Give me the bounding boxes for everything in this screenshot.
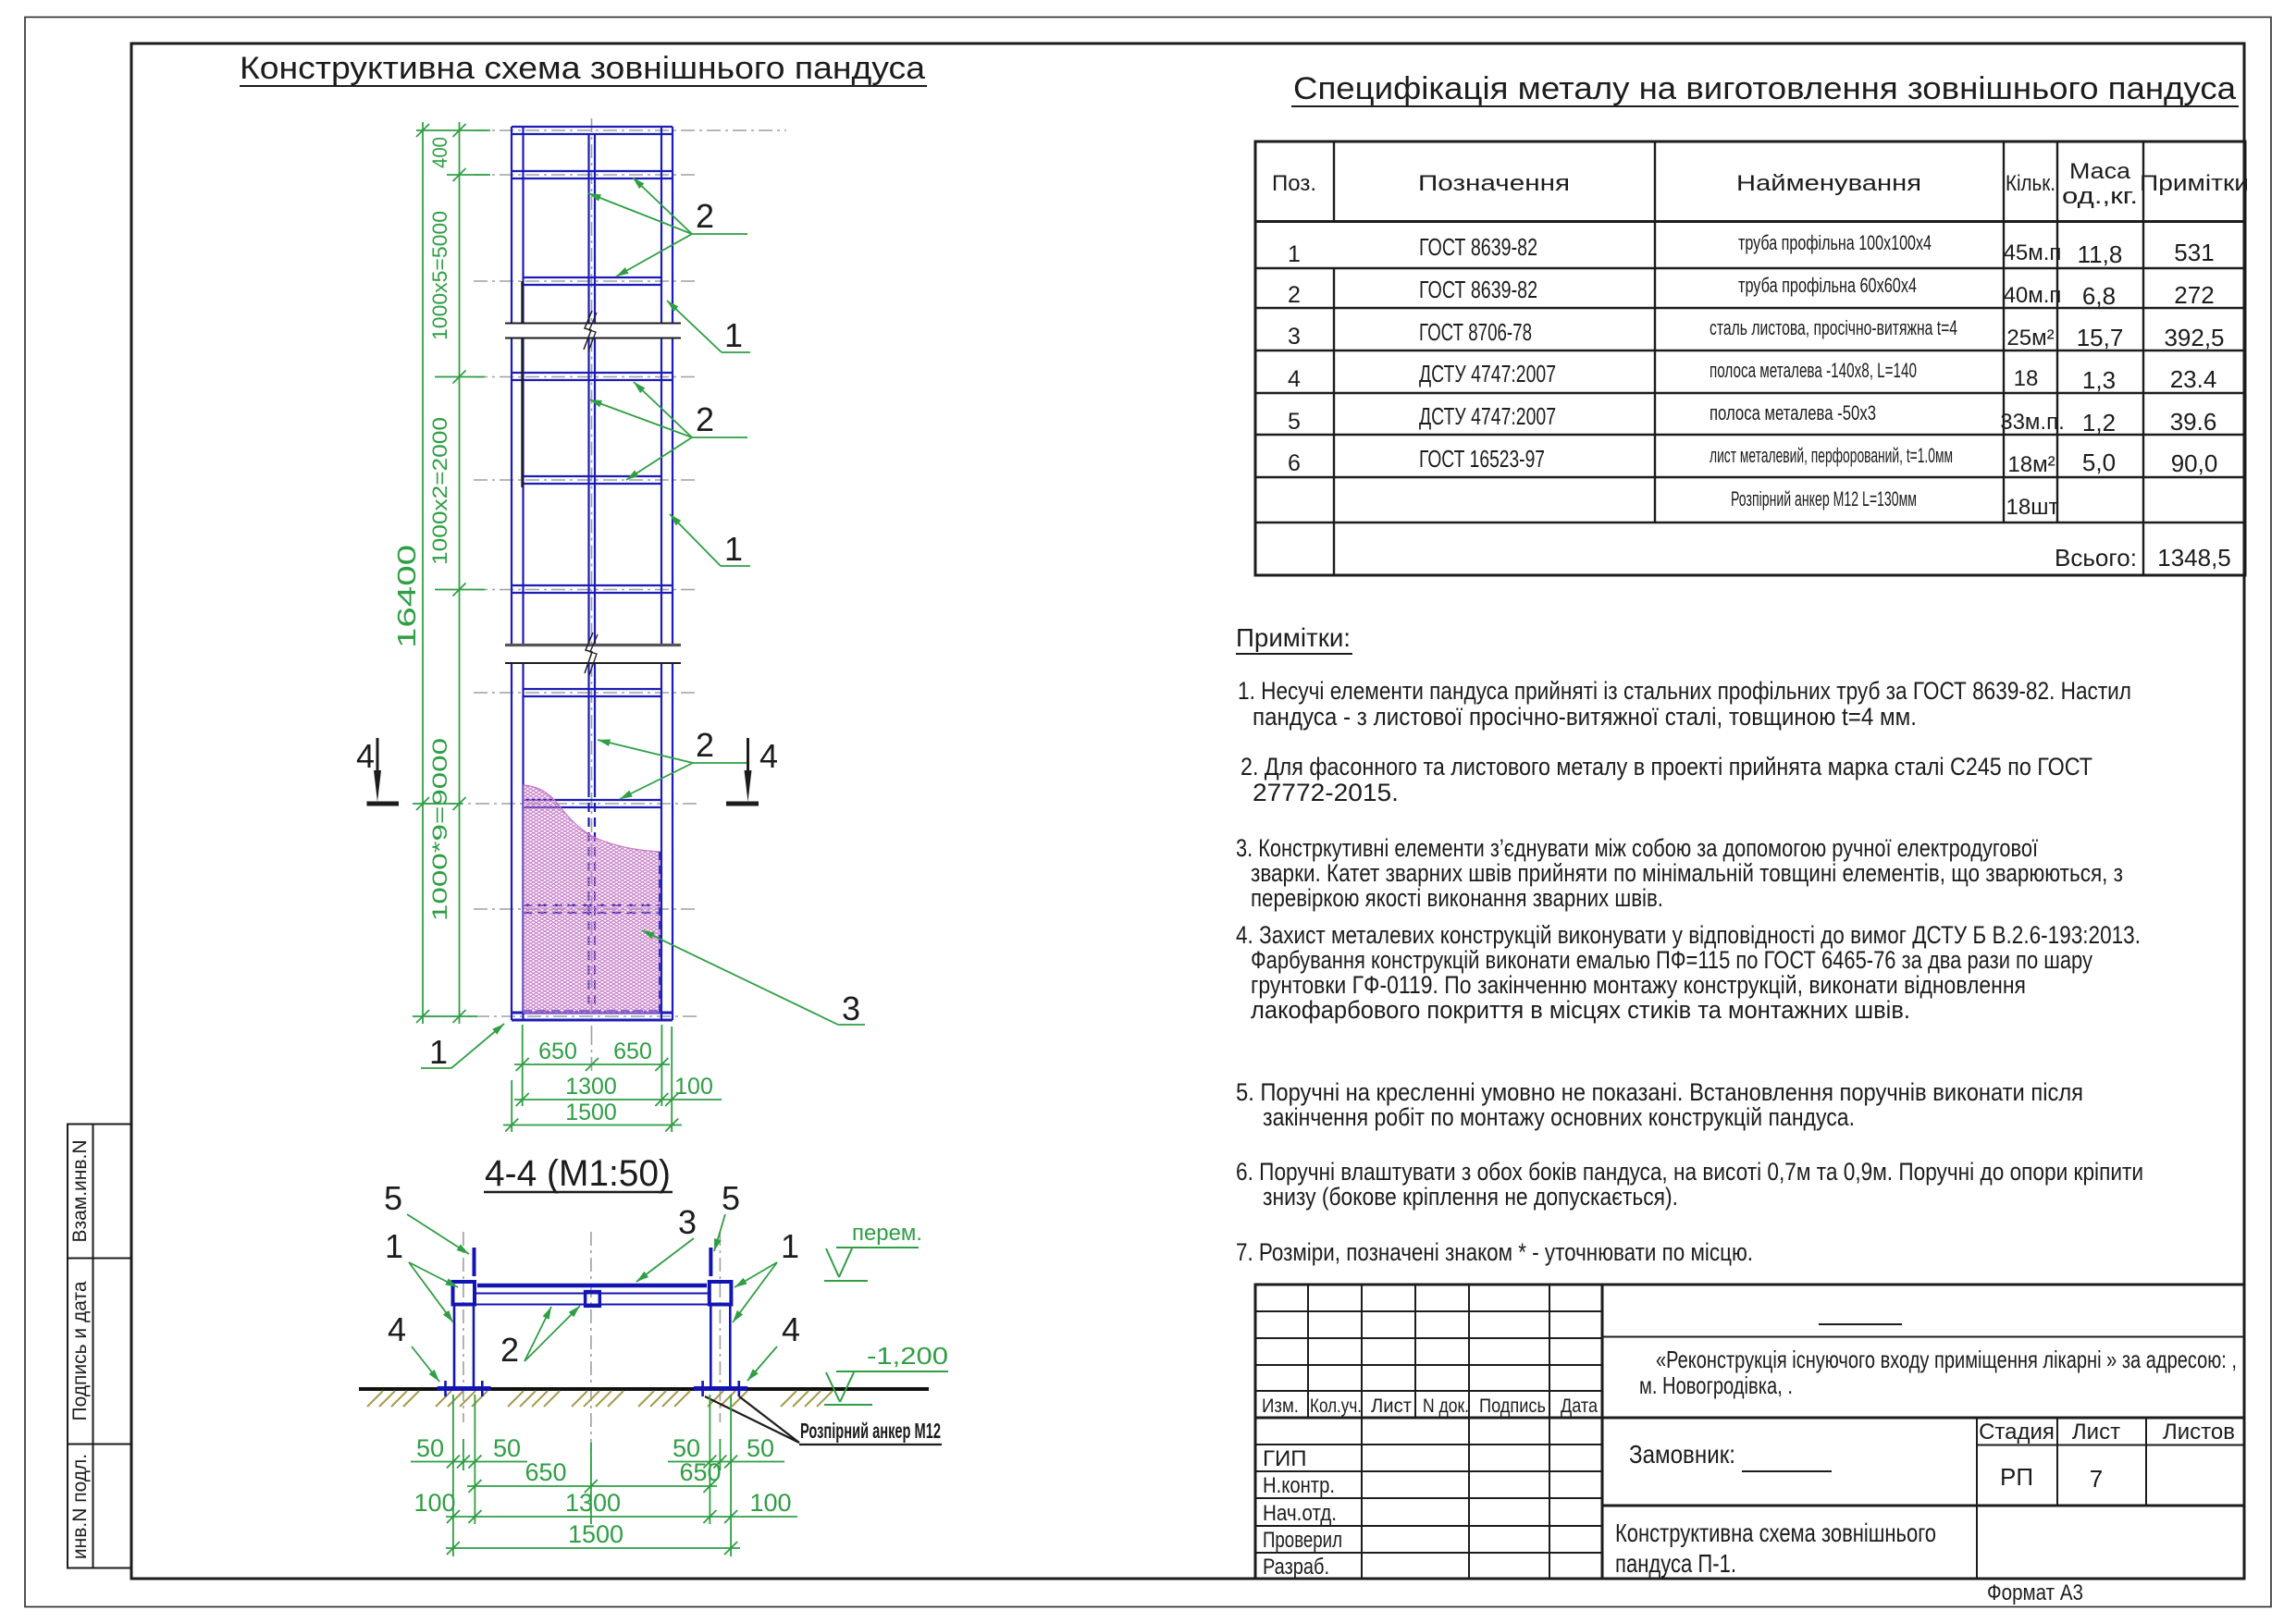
svg-text:4-4 (М1:50): 4-4 (М1:50): [485, 1153, 671, 1194]
svg-text:27772-2015.: 27772-2015.: [1253, 779, 1399, 806]
svg-text:650: 650: [538, 1039, 577, 1064]
svg-text:Найменування: Найменування: [1736, 171, 1921, 196]
svg-text:1: 1: [724, 316, 743, 354]
svg-text:Специфікація металу на виготов: Специфікація металу на виготовлення зовн…: [1293, 71, 2236, 106]
svg-text:11,8: 11,8: [2078, 240, 2123, 268]
svg-text:1. Несучі елементи пандуса при: 1. Несучі елементи пандуса прийняті із с…: [1238, 677, 2131, 705]
svg-text:РП: РП: [2000, 1463, 2033, 1491]
svg-text:23.4: 23.4: [2170, 365, 2217, 393]
svg-text:50: 50: [747, 1434, 774, 1462]
svg-text:Конструктивна схема зовнішньог: Конструктивна схема зовнішнього: [1615, 1518, 1936, 1547]
svg-text:Лист: Лист: [2072, 1420, 2120, 1445]
svg-text:6: 6: [1288, 450, 1301, 476]
svg-text:Фарбування конструкцій виконат: Фарбування конструкцій виконати емалью П…: [1251, 946, 2092, 974]
svg-text:90,0: 90,0: [2171, 449, 2218, 477]
svg-text:Примітки:: Примітки:: [1236, 623, 1351, 652]
svg-text:N док.: N док.: [1423, 1396, 1469, 1417]
svg-text:ГОСТ 8639-82: ГОСТ 8639-82: [1419, 276, 1537, 303]
svg-text:полоса металева -140х8, L=140: полоса металева -140х8, L=140: [1710, 359, 1917, 382]
svg-text:Замовник:: Замовник:: [1629, 1440, 1735, 1469]
svg-text:Изм.: Изм.: [1262, 1396, 1299, 1417]
svg-text:грунтовки ГФ-0119. По закінчен: грунтовки ГФ-0119. По закінченню монтажу…: [1251, 971, 2026, 999]
svg-text:18м²: 18м²: [2007, 452, 2055, 477]
svg-text:100: 100: [674, 1074, 713, 1100]
svg-text:25м²: 25м²: [2006, 326, 2054, 350]
svg-text:1: 1: [429, 1033, 448, 1071]
svg-text:33м.п.: 33м.п.: [2000, 410, 2065, 435]
svg-text:перем.: перем.: [852, 1221, 922, 1246]
svg-text:«Реконструкція існуючого входу: «Реконструкція існуючого входу приміщенн…: [1656, 1346, 2237, 1373]
svg-text:Проверил: Проверил: [1263, 1528, 1342, 1553]
svg-text:50: 50: [493, 1434, 521, 1462]
svg-text:16400: 16400: [392, 545, 421, 648]
svg-text:272: 272: [2174, 281, 2214, 309]
svg-text:ДСТУ 4747:2007: ДСТУ 4747:2007: [1419, 402, 1556, 430]
svg-text:Стадия: Стадия: [1979, 1420, 2055, 1445]
svg-text:392,5: 392,5: [2164, 324, 2224, 351]
svg-text:1000x5=5000: 1000x5=5000: [428, 211, 451, 340]
svg-text:Маса: Маса: [2069, 159, 2131, 184]
svg-text:650: 650: [613, 1039, 652, 1064]
svg-text:2: 2: [1288, 282, 1301, 308]
svg-text:5: 5: [722, 1179, 740, 1217]
svg-text:Поз.: Поз.: [1272, 171, 1316, 196]
svg-text:труба профільна 100х100х4: труба профільна 100х100х4: [1738, 231, 1932, 254]
svg-text:5: 5: [384, 1179, 402, 1217]
svg-text:5: 5: [1288, 409, 1301, 435]
svg-text:пандуса П-1.: пандуса П-1.: [1615, 1549, 1736, 1578]
svg-text:2. Для фасонного та листового: 2. Для фасонного та листового металу в п…: [1241, 753, 2092, 781]
svg-text:1348,5: 1348,5: [2157, 544, 2231, 572]
svg-text:Подпись и дата: Подпись и дата: [69, 1281, 91, 1420]
svg-text:2: 2: [696, 726, 714, 764]
svg-text:1: 1: [724, 530, 743, 568]
svg-text:4. Захист металевих конструкці: 4. Захист металевих конструкцій виконува…: [1236, 921, 2141, 949]
svg-text:6. Поручні влаштувати з обох б: 6. Поручні влаштувати з обох боків панду…: [1236, 1158, 2143, 1186]
svg-text:2: 2: [500, 1331, 519, 1369]
svg-text:полоса металева -50х3: полоса металева -50х3: [1710, 401, 1876, 424]
svg-text:ГИП: ГИП: [1263, 1446, 1307, 1471]
svg-text:Примітки: Примітки: [2140, 171, 2249, 196]
svg-text:закінчення робіт по монтажу ос: закінчення робіт по монтажу основних кон…: [1263, 1103, 1855, 1131]
svg-text:2: 2: [696, 197, 714, 235]
svg-text:3. Констркутивні елементи з’єд: 3. Констркутивні елементи з’єднувати між…: [1236, 834, 2038, 862]
svg-text:2: 2: [696, 400, 714, 438]
svg-text:400: 400: [428, 137, 451, 168]
svg-text:инв.N подл.: инв.N подл.: [69, 1454, 91, 1559]
svg-text:5. Поручні на кресленні умовн: 5. Поручні на кресленні умовно не показа…: [1236, 1078, 2083, 1106]
svg-text:650: 650: [525, 1458, 566, 1486]
svg-text:ДСТУ 4747:2007: ДСТУ 4747:2007: [1419, 360, 1556, 387]
svg-text:м. Новогродівка, .: м. Новогродівка, .: [1639, 1371, 1793, 1399]
svg-text:50: 50: [416, 1434, 444, 1462]
svg-text:Формат А3: Формат А3: [1987, 1580, 2083, 1605]
svg-text:Нач.отд.: Нач.отд.: [1263, 1501, 1337, 1526]
svg-text:ГОСТ 8639-82: ГОСТ 8639-82: [1419, 233, 1537, 261]
svg-text:лакофарбового покриття в місця: лакофарбового покриття в місцях стиків т…: [1251, 996, 1910, 1024]
svg-text:Кол.уч.: Кол.уч.: [1310, 1396, 1362, 1417]
svg-text:1: 1: [781, 1227, 799, 1265]
svg-text:4: 4: [782, 1310, 800, 1348]
svg-text:Разраб.: Разраб.: [1263, 1555, 1329, 1580]
svg-text:1500: 1500: [568, 1520, 623, 1548]
svg-text:40м.п: 40м.п: [2004, 283, 2062, 308]
svg-text:Кільк.: Кільк.: [2006, 171, 2055, 196]
svg-text:4: 4: [388, 1310, 406, 1348]
svg-text:зварки. Катет зварних швів при: зварки. Катет зварних швів прийняти по м…: [1251, 859, 2123, 887]
svg-text:3: 3: [842, 990, 860, 1027]
svg-text:3: 3: [1288, 324, 1301, 350]
svg-text:650: 650: [679, 1458, 721, 1486]
svg-text:1300: 1300: [565, 1489, 621, 1517]
svg-text:7: 7: [2090, 1465, 2103, 1493]
svg-text:531: 531: [2174, 239, 2214, 266]
svg-text:100: 100: [414, 1489, 455, 1517]
svg-text:18: 18: [2014, 366, 2039, 391]
svg-text:перевіркою якості виконання зв: перевіркою якості виконання зварних швів…: [1251, 884, 1663, 912]
svg-text:1300: 1300: [565, 1074, 617, 1100]
svg-text:од.,кг.: од.,кг.: [2062, 184, 2138, 209]
svg-text:15,7: 15,7: [2077, 324, 2124, 351]
svg-text:39.6: 39.6: [2170, 408, 2217, 436]
svg-text:45м.п: 45м.п: [2004, 240, 2062, 265]
svg-text:ГОСТ 16523-97: ГОСТ 16523-97: [1419, 445, 1545, 473]
svg-text:Листов: Листов: [2163, 1420, 2235, 1445]
svg-text:1000x2=2000: 1000x2=2000: [428, 417, 451, 565]
svg-text:ГОСТ 8706-78: ГОСТ 8706-78: [1419, 318, 1532, 346]
svg-text:1500: 1500: [565, 1100, 617, 1125]
svg-text:1,2: 1,2: [2082, 409, 2116, 436]
svg-text:1: 1: [1288, 241, 1301, 267]
svg-text:4: 4: [1288, 366, 1301, 392]
svg-text:1,3: 1,3: [2082, 366, 2116, 394]
svg-text:1000*9=9000: 1000*9=9000: [428, 738, 451, 921]
svg-text:18шт: 18шт: [2006, 495, 2059, 520]
svg-text:Конструктивна схема зовнішньог: Конструктивна схема зовнішнього пандуса: [240, 51, 925, 86]
svg-text:Всього:: Всього:: [2055, 544, 2137, 572]
svg-text:пандуса - з листової просічно-: пандуса - з листової просічно-витяжної с…: [1253, 703, 1917, 731]
svg-text:Позначення: Позначення: [1418, 171, 1570, 196]
svg-text:5,0: 5,0: [2082, 449, 2116, 476]
svg-text:Подпись: Подпись: [1479, 1396, 1546, 1417]
svg-text:3: 3: [678, 1203, 697, 1241]
svg-text:Дата: Дата: [1561, 1396, 1598, 1417]
svg-text:100: 100: [749, 1489, 791, 1517]
svg-text:знизу (бокове кріплення не доп: знизу (бокове кріплення не допускається)…: [1263, 1183, 1678, 1211]
svg-text:4: 4: [356, 737, 375, 775]
svg-text:лист металевий, перфорований,: лист металевий, перфорований, t=1.0мм: [1710, 444, 1953, 467]
svg-text:-1,200: -1,200: [867, 1342, 948, 1370]
svg-text:Взам.инв.N: Взам.инв.N: [69, 1139, 91, 1242]
svg-text:4: 4: [759, 737, 778, 775]
svg-text:7. Розміри, позначені знаком *: 7. Розміри, позначені знаком * - уточнюв…: [1236, 1238, 1753, 1266]
svg-text:Розпірний анкер М12 L=130мм: Розпірний анкер М12 L=130мм: [1731, 487, 1917, 510]
svg-text:1: 1: [385, 1227, 403, 1265]
svg-text:Розпірний анкер М12: Розпірний анкер М12: [800, 1419, 941, 1443]
svg-text:сталь листова, просічно-витяжн: сталь листова, просічно-витяжна t=4: [1710, 316, 1957, 339]
svg-text:6,8: 6,8: [2082, 282, 2116, 310]
svg-text:Лист: Лист: [1371, 1396, 1412, 1417]
svg-text:Н.контр.: Н.контр.: [1263, 1473, 1335, 1498]
svg-text:труба профільна 60х60х4: труба профільна 60х60х4: [1738, 274, 1917, 297]
